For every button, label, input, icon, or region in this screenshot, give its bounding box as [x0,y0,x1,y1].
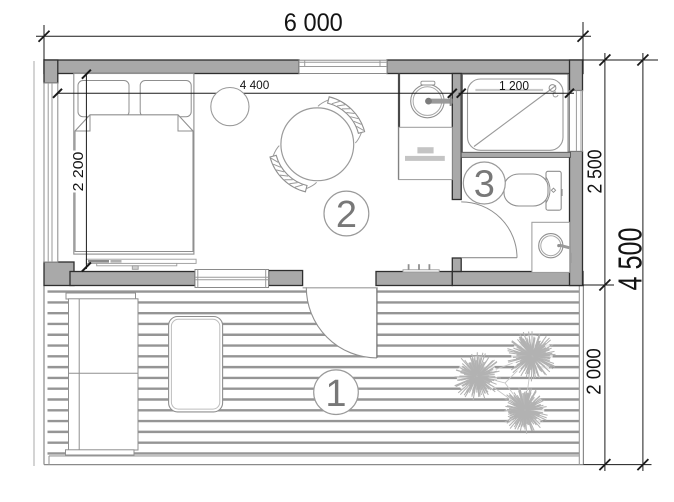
svg-text:2 000: 2 000 [584,348,606,395]
svg-text:6 000: 6 000 [284,9,343,37]
svg-text:2 500: 2 500 [585,150,607,194]
svg-text:2: 2 [336,194,357,236]
svg-text:2 200: 2 200 [70,152,87,192]
svg-text:3: 3 [474,164,495,206]
svg-text:1: 1 [325,373,346,415]
svg-text:1 200: 1 200 [499,79,529,93]
svg-text:4 500: 4 500 [612,228,649,291]
svg-text:4 400: 4 400 [240,80,270,92]
